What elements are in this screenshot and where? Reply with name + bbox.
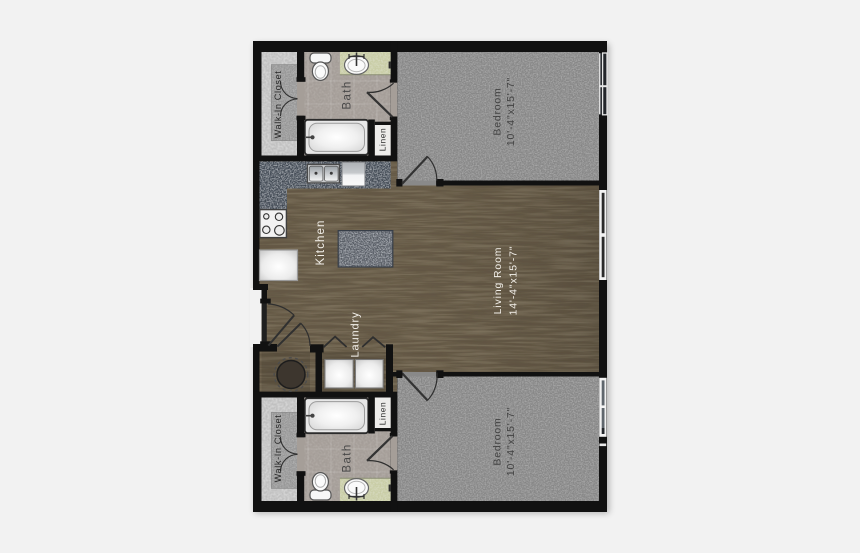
svg-text:Bath: Bath (342, 80, 354, 109)
svg-text:Walk-In Closet: Walk-In Closet (273, 71, 283, 139)
svg-text:10'-4"x15'-7": 10'-4"x15'-7" (505, 407, 517, 476)
svg-text:10'-4"x15'-7": 10'-4"x15'-7" (505, 77, 517, 146)
svg-text:Bedroom: Bedroom (492, 87, 504, 135)
svg-text:Living Room: Living Room (493, 247, 504, 315)
svg-text:Linen: Linen (378, 128, 388, 152)
svg-text:Kitchen: Kitchen (315, 219, 327, 265)
svg-text:Walk-In Closet: Walk-In Closet (273, 415, 283, 483)
svg-text:Linen: Linen (378, 402, 388, 426)
svg-text:Bath: Bath (342, 443, 354, 472)
svg-text:14'-4"x15'-7": 14'-4"x15'-7" (509, 246, 520, 316)
svg-text:Bedroom: Bedroom (492, 417, 504, 465)
svg-text:Laundry: Laundry (350, 311, 362, 357)
